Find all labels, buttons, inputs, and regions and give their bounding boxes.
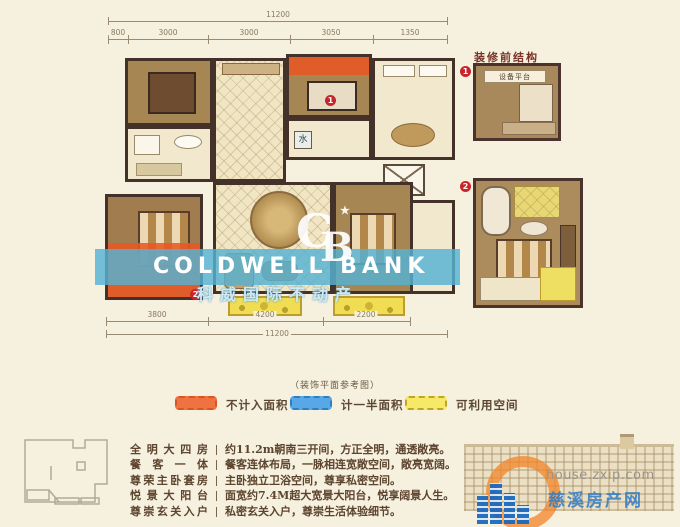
bath-rug bbox=[136, 163, 182, 176]
coldwell-banker-logo: C B ★ bbox=[296, 208, 333, 254]
feature-title: 餐客一体 bbox=[130, 459, 208, 471]
legend-swatch-not-counted bbox=[175, 396, 217, 410]
dim-tick bbox=[323, 317, 324, 326]
dim-tick bbox=[208, 317, 209, 326]
hallway: 水 bbox=[286, 118, 372, 160]
marker-1-badge: 1 bbox=[325, 95, 336, 106]
legend-swatch-half-counted bbox=[290, 396, 332, 410]
dim-seg: 3800 bbox=[145, 311, 168, 319]
building-tower bbox=[620, 434, 634, 449]
feature-desc: 面宽约7.4M超大宽景大阳台，悦享阔景人生。 bbox=[225, 490, 454, 502]
feature-row: 餐客一体 餐客连体布局，一脉相连宽敞空间，敞亮宽阔。 bbox=[130, 459, 466, 471]
bed bbox=[148, 72, 196, 114]
logo-star-icon: ★ bbox=[340, 204, 350, 217]
dining-room bbox=[213, 58, 286, 182]
feature-title: 尊荣主卧套房 bbox=[130, 475, 208, 487]
equipment-platform-label: 设备平台 bbox=[484, 70, 546, 83]
feature-list: 全明大四房 约11.2m朝南三开间，方正全明，通透敞亮。 餐客一体 餐客连体布局… bbox=[130, 444, 466, 521]
rug bbox=[502, 122, 556, 135]
legend-swatch-usable bbox=[405, 396, 447, 410]
listing-floorplan-image: 11200 800 3000 3000 3050 1350 bbox=[0, 0, 680, 527]
dim-tick bbox=[208, 35, 209, 44]
feature-row: 尊荣主卧套房 主卧独立卫浴空间，尊享私密空间。 bbox=[130, 475, 466, 487]
divider bbox=[216, 476, 217, 486]
dim-tick bbox=[410, 317, 411, 326]
dim-tick bbox=[128, 35, 129, 44]
closet bbox=[383, 65, 415, 77]
usable-space-room bbox=[540, 267, 576, 301]
watermark-url: house.zxip.com bbox=[546, 468, 655, 483]
sideboard bbox=[222, 63, 280, 75]
divider bbox=[216, 507, 217, 517]
dim-tick bbox=[447, 330, 448, 338]
dim-seg: 3000 bbox=[237, 29, 260, 37]
detail-marker-2: 2 bbox=[460, 181, 471, 192]
dim-tick bbox=[447, 35, 448, 44]
feature-row: 尊崇玄关入户 私密玄关入户，尊崇生活体验细节。 bbox=[130, 506, 466, 518]
detail-marker-1: 1 bbox=[460, 66, 471, 77]
outline-floorplan-sketch bbox=[15, 436, 115, 512]
not-counted-zone-top bbox=[289, 57, 369, 75]
water-point-label: 水 bbox=[294, 131, 312, 149]
feature-row: 全明大四房 约11.2m朝南三开间，方正全明，通透敞亮。 bbox=[130, 444, 466, 456]
divider bbox=[216, 491, 217, 501]
feature-title: 全明大四房 bbox=[130, 444, 208, 456]
dim-seg: 800 bbox=[109, 29, 127, 37]
dim-seg: 1350 bbox=[398, 29, 421, 37]
sink bbox=[174, 135, 202, 149]
bathroom-top-left bbox=[125, 126, 213, 182]
logo-bar bbox=[504, 493, 515, 524]
oval-rug bbox=[391, 123, 435, 147]
detail-plan-1: 设备平台 bbox=[473, 63, 561, 141]
legend-label-usable: 可利用空间 bbox=[456, 397, 519, 413]
site-logo-buildings-icon bbox=[477, 480, 531, 524]
bathtub bbox=[481, 186, 511, 236]
feature-desc: 主卧独立卫浴空间，尊享私密空间。 bbox=[225, 475, 401, 487]
logo-bar bbox=[477, 495, 488, 524]
legend-label-half-counted: 计一半面积 bbox=[341, 397, 404, 413]
dim-tick bbox=[106, 317, 107, 326]
feature-title: 尊崇玄关入户 bbox=[130, 506, 208, 518]
logo-letter-b: B bbox=[320, 228, 354, 268]
dim-seg: 3000 bbox=[156, 29, 179, 37]
legend-label-not-counted: 不计入面积 bbox=[226, 397, 289, 413]
tiled-bath-floor bbox=[514, 186, 560, 218]
dim-seg: 2200 bbox=[354, 311, 377, 319]
divider bbox=[216, 460, 217, 470]
bedroom-top-left bbox=[125, 58, 213, 126]
sink bbox=[520, 221, 548, 236]
dim-line bbox=[108, 39, 448, 40]
feature-title: 悦景大阳台 bbox=[130, 490, 208, 502]
dim-total-top: 11200 bbox=[264, 11, 292, 19]
legend-caption: （装饰平面参考图） bbox=[240, 378, 430, 391]
dim-tick bbox=[106, 330, 107, 338]
dim-total-bottom: 11200 bbox=[263, 330, 291, 338]
dim-tick bbox=[108, 17, 109, 25]
divider bbox=[216, 445, 217, 455]
closet bbox=[419, 65, 447, 77]
bedroom-top-right: 1 bbox=[286, 54, 372, 118]
dim-seg: 4200 bbox=[253, 311, 276, 319]
watermark-brand-cn: 科威国际不动产 bbox=[95, 281, 460, 305]
bed bbox=[519, 84, 553, 122]
detail-plan-2 bbox=[473, 178, 583, 308]
dim-tick bbox=[447, 17, 448, 25]
logo-bar bbox=[490, 483, 502, 524]
toilet bbox=[134, 135, 160, 155]
wardrobe bbox=[560, 225, 576, 271]
dim-seg: 3050 bbox=[319, 29, 342, 37]
watermark-site-name: 慈溪房产网 bbox=[548, 486, 643, 511]
watermark-brand-text: COLDWELL BANK bbox=[95, 254, 460, 279]
logo-bar bbox=[517, 505, 529, 524]
dim-line bbox=[106, 321, 410, 322]
feature-desc: 餐客连体布局，一脉相连宽敞空间，敞亮宽阔。 bbox=[225, 459, 456, 471]
floor-area bbox=[480, 277, 544, 301]
dim-line bbox=[108, 21, 448, 22]
foyer-right-wing bbox=[372, 58, 455, 160]
dim-tick bbox=[373, 35, 374, 44]
feature-desc: 约11.2m朝南三开间，方正全明，通透敞亮。 bbox=[225, 444, 450, 456]
feature-desc: 私密玄关入户，尊崇生活体验细节。 bbox=[225, 506, 401, 518]
dim-tick bbox=[290, 35, 291, 44]
feature-row: 悦景大阳台 面宽约7.4M超大宽景大阳台，悦享阔景人生。 bbox=[130, 490, 466, 502]
